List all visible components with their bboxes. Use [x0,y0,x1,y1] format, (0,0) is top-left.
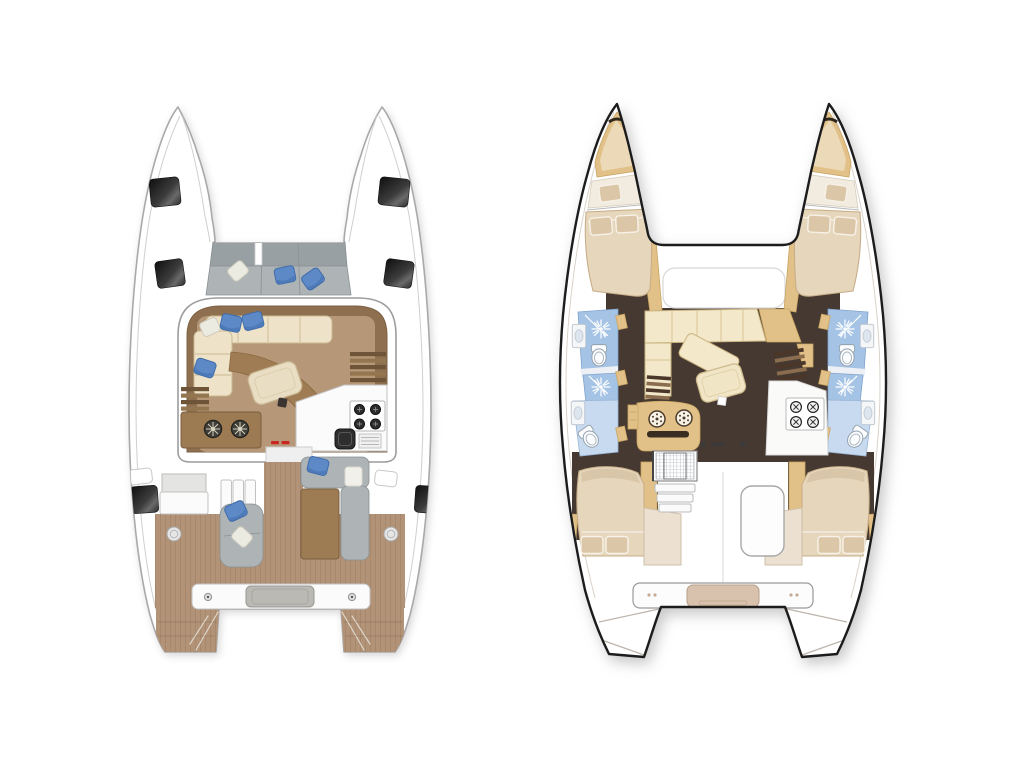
galley-counter [628,401,700,451]
hull-window [130,485,159,514]
deck-hatch [384,527,398,541]
port-locker [160,492,208,514]
stove-burner-icon [371,405,381,415]
berth-pillow [606,537,628,554]
vent-fan-icon [231,420,248,437]
deck-hatch [167,527,181,541]
chart-bench [181,412,261,448]
hull-window [383,258,414,289]
companionway-steps [655,484,695,512]
stove-burner-icon [355,419,365,429]
deck-plan [110,95,460,695]
side-locker [128,468,153,486]
hull-window [378,177,411,208]
aft-cabin-berth [577,467,644,556]
cockpit-table-pad [301,489,339,559]
hull-window [154,258,185,289]
transom-bench [633,583,813,608]
stove-counter [766,381,828,455]
armrest [345,467,362,486]
catamaran-layout-canvas [0,0,1024,768]
berth-pillow [599,184,622,203]
grill-slot [647,431,689,438]
side-locker [374,470,398,488]
stove-burner-icon [355,405,365,415]
berth-pillow [581,537,603,554]
engine-hatch [653,451,697,481]
saloon [178,298,396,463]
table-leg [717,396,726,405]
shower-stall [583,373,618,403]
port-locker-top [162,474,206,493]
transom-bench [192,584,370,609]
berth-pillow [589,217,612,236]
port-chaise [220,500,263,567]
cabin-door-panel [741,486,784,556]
vent-fan-icon [204,420,221,437]
table-leg [277,397,287,407]
stove-burner-icon [371,419,381,429]
hull-window [149,177,182,208]
cabin-seat [644,508,681,565]
forward-cockpit-seating [206,242,351,295]
interior-plan [550,88,915,700]
berth-pillow [616,215,639,233]
starboard-sofa [301,456,369,560]
